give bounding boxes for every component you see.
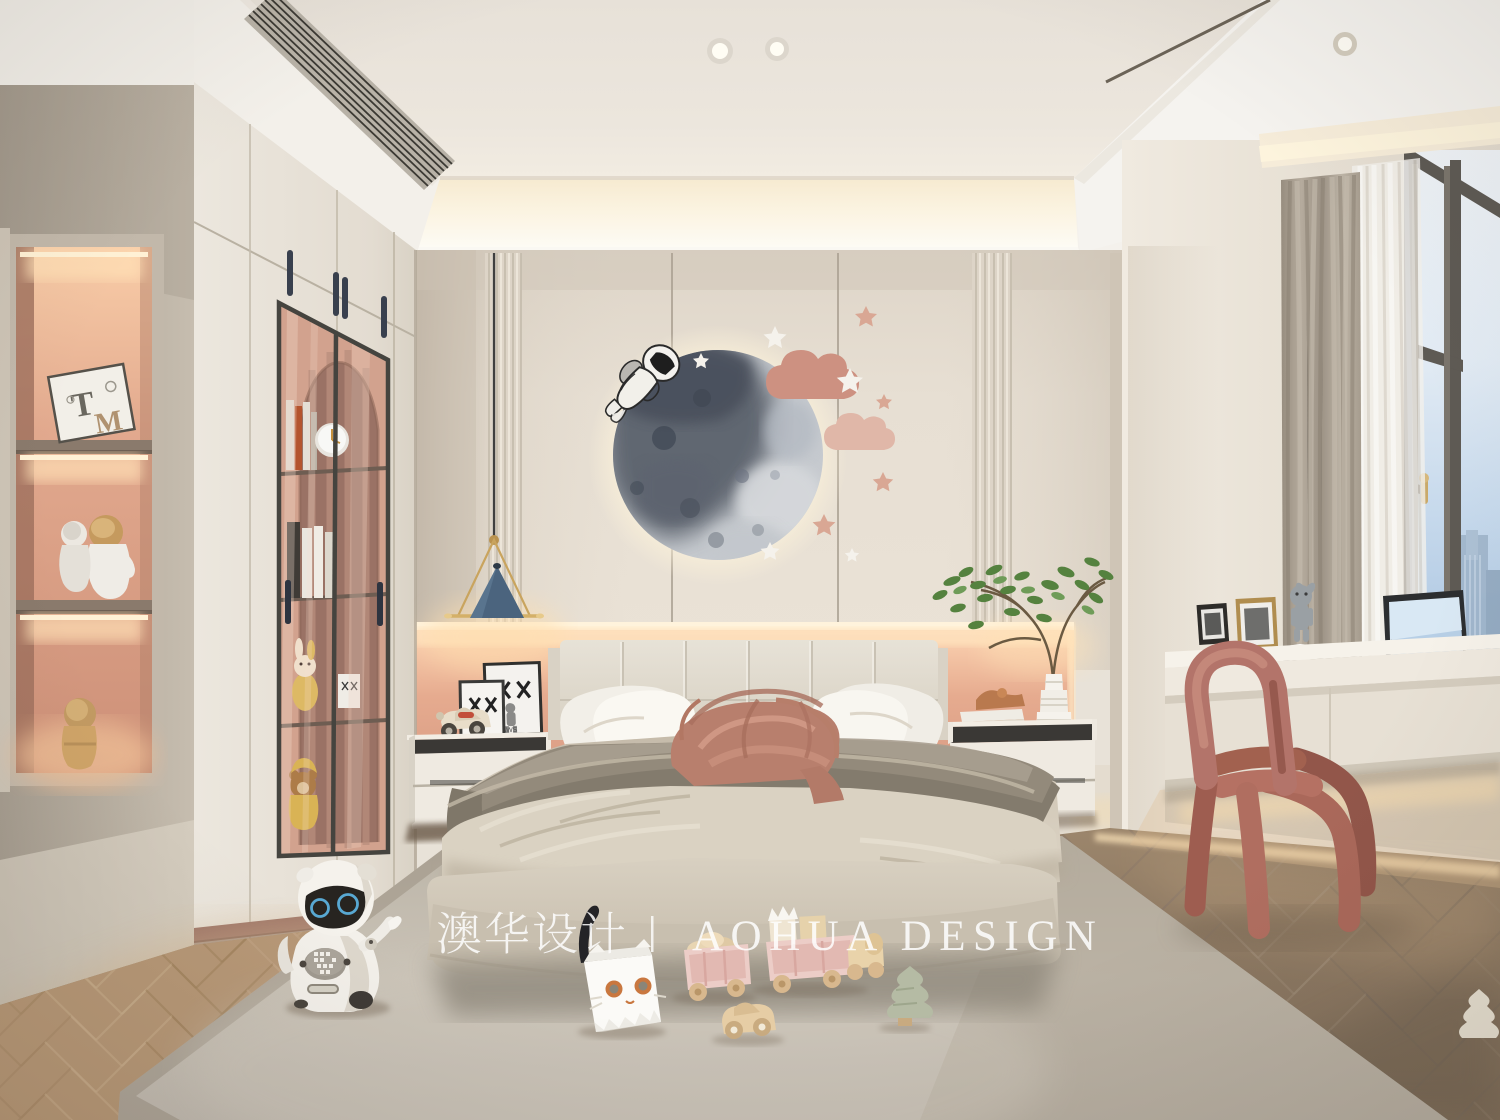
svg-text:AOHUA DESIGN: AOHUA DESIGN xyxy=(692,913,1103,960)
